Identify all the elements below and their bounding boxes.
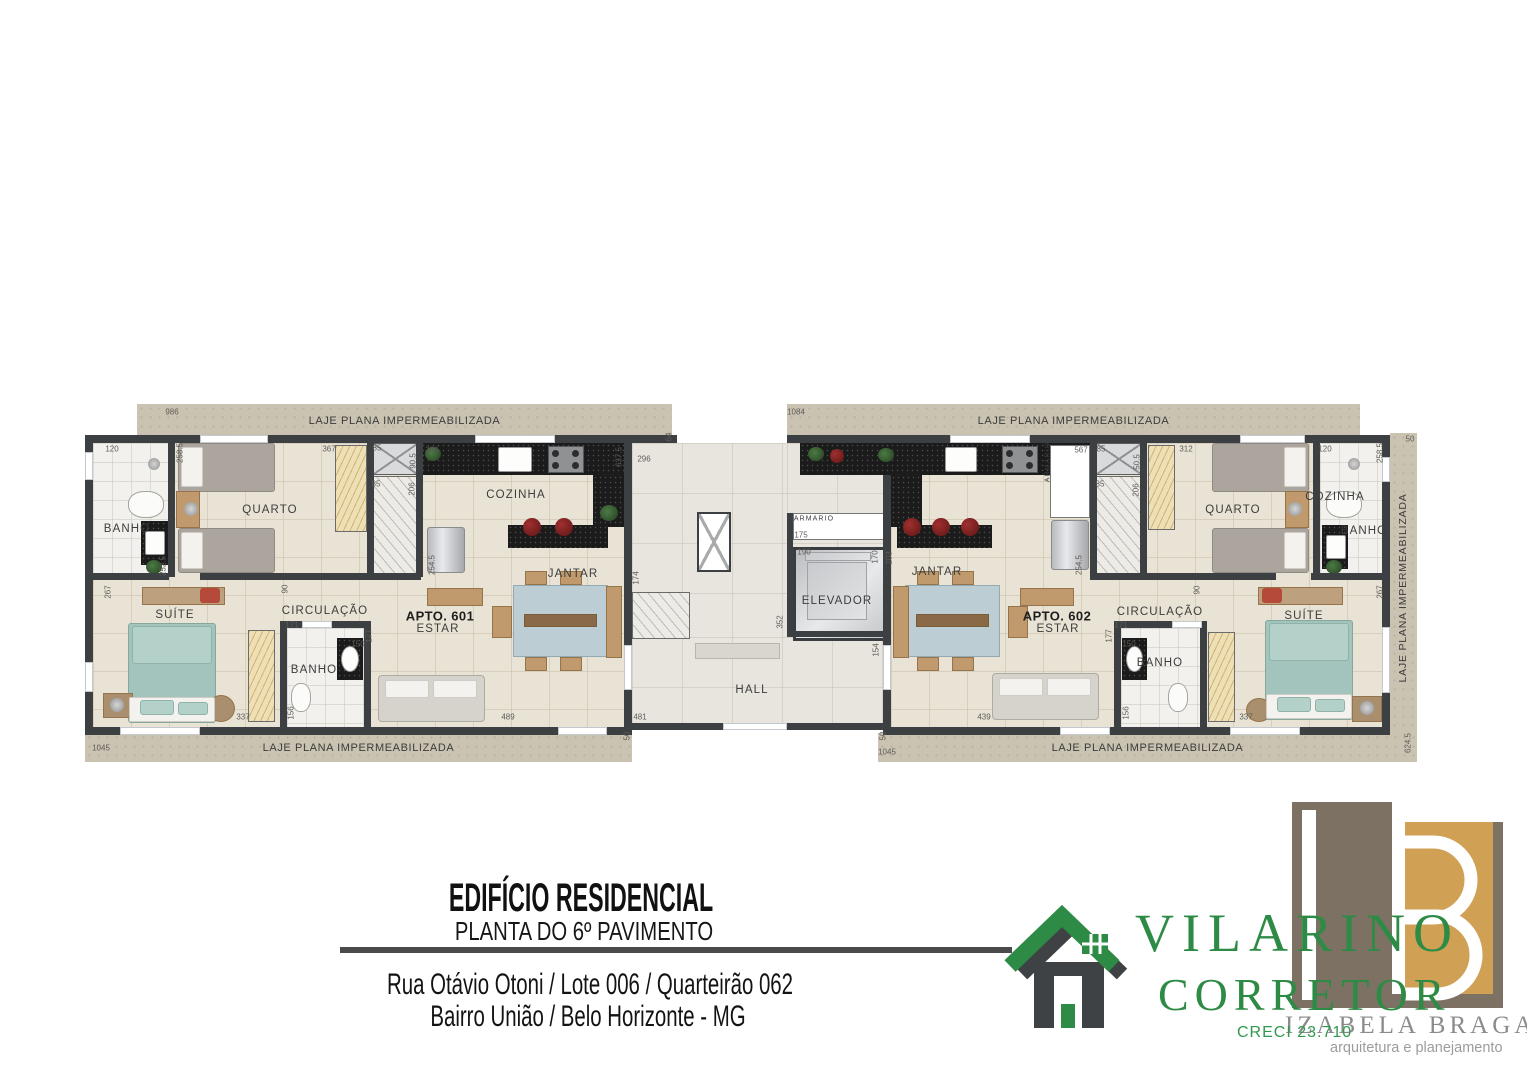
dimension-label: 150 xyxy=(351,640,364,649)
dimension-label: 50.5 xyxy=(1133,454,1142,470)
dimension-label: 489 xyxy=(501,713,514,722)
dimension-label: 624.5 xyxy=(1404,733,1413,753)
dimension-label: 252.5 xyxy=(159,556,168,576)
dimension-label: 206 xyxy=(408,482,417,495)
dimension-label: 50 xyxy=(1406,435,1415,444)
broker-title: CORRETOR xyxy=(1158,968,1451,1021)
dimension-label: 567 xyxy=(1074,446,1087,455)
dimension-label: 386 xyxy=(425,446,438,455)
dimension-label: 90 xyxy=(1193,586,1202,595)
dimension-label: 367 xyxy=(322,445,335,454)
broker-house-icon xyxy=(1002,876,1134,1036)
dimension-label: 439 xyxy=(977,713,990,722)
dimension-label: 337 xyxy=(1239,713,1252,722)
floor-plan-sheet: LAJE PLANA IMPERMEABILIZADA LAJE PLANA I… xyxy=(0,0,1527,1080)
broker-name: VILARINO xyxy=(1135,902,1460,964)
dimension-label: 64 xyxy=(665,433,674,442)
dimension-label: 312 xyxy=(1179,445,1192,454)
dimension-label: 267 xyxy=(104,585,113,598)
dimension-label: 254.5 xyxy=(428,555,437,575)
dimension-label: 174 xyxy=(632,571,641,584)
dimension-label: 267 xyxy=(1376,585,1385,598)
dimension-label: 1084 xyxy=(787,408,805,417)
dimension-label: 170 xyxy=(871,550,880,563)
dimension-label: 85 xyxy=(373,444,382,453)
dimension-label: 637.5 xyxy=(615,447,624,467)
dimension-label: 175 xyxy=(794,531,807,540)
dimension-label: 1045 xyxy=(878,748,896,757)
broker-creci: CRECI 23.710 xyxy=(1237,1024,1352,1042)
dimension-label: 150 xyxy=(1122,640,1135,649)
dimension-label: 120 xyxy=(1318,445,1331,454)
dimension-label: 177 xyxy=(365,629,374,642)
dimension-label: 120 xyxy=(105,445,118,454)
dimension-label: 296 xyxy=(637,455,650,464)
dimension-label: 171 xyxy=(285,621,298,630)
architect-tagline: arquitetura e planejamento xyxy=(1330,1040,1503,1056)
dimension-label: 90 xyxy=(281,585,290,594)
dimension-label: 171 xyxy=(1114,621,1127,630)
dimension-label: 258.5 xyxy=(176,443,185,463)
dimension-label: 254.5 xyxy=(1075,555,1084,575)
dimension-label: 156 xyxy=(287,706,296,719)
dimension-label: 154 xyxy=(872,643,881,656)
dimension-label: 337 xyxy=(236,713,249,722)
dimension-label: 50 xyxy=(623,732,632,741)
dimension-label: 206 xyxy=(1132,483,1141,496)
dimension-label: 986 xyxy=(165,408,178,417)
dimension-label: 481 xyxy=(633,713,646,722)
dimension-label: 258.5 xyxy=(1376,443,1385,463)
dimension-label: 1045 xyxy=(92,744,110,753)
dimension-label: 203 xyxy=(885,551,894,564)
dimension-label: 156 xyxy=(1122,706,1131,719)
dimension-label: 177 xyxy=(1105,629,1114,642)
dimension-label: 85 xyxy=(1096,480,1105,489)
dimension-label: 85 xyxy=(372,480,381,489)
dimension-label: 50 xyxy=(879,732,888,741)
dimension-label: 352 xyxy=(776,615,785,628)
dimension-label: 85 xyxy=(1097,445,1106,454)
dimension-label: 90.5 xyxy=(409,453,418,469)
dimension-label: 190 xyxy=(797,548,810,557)
